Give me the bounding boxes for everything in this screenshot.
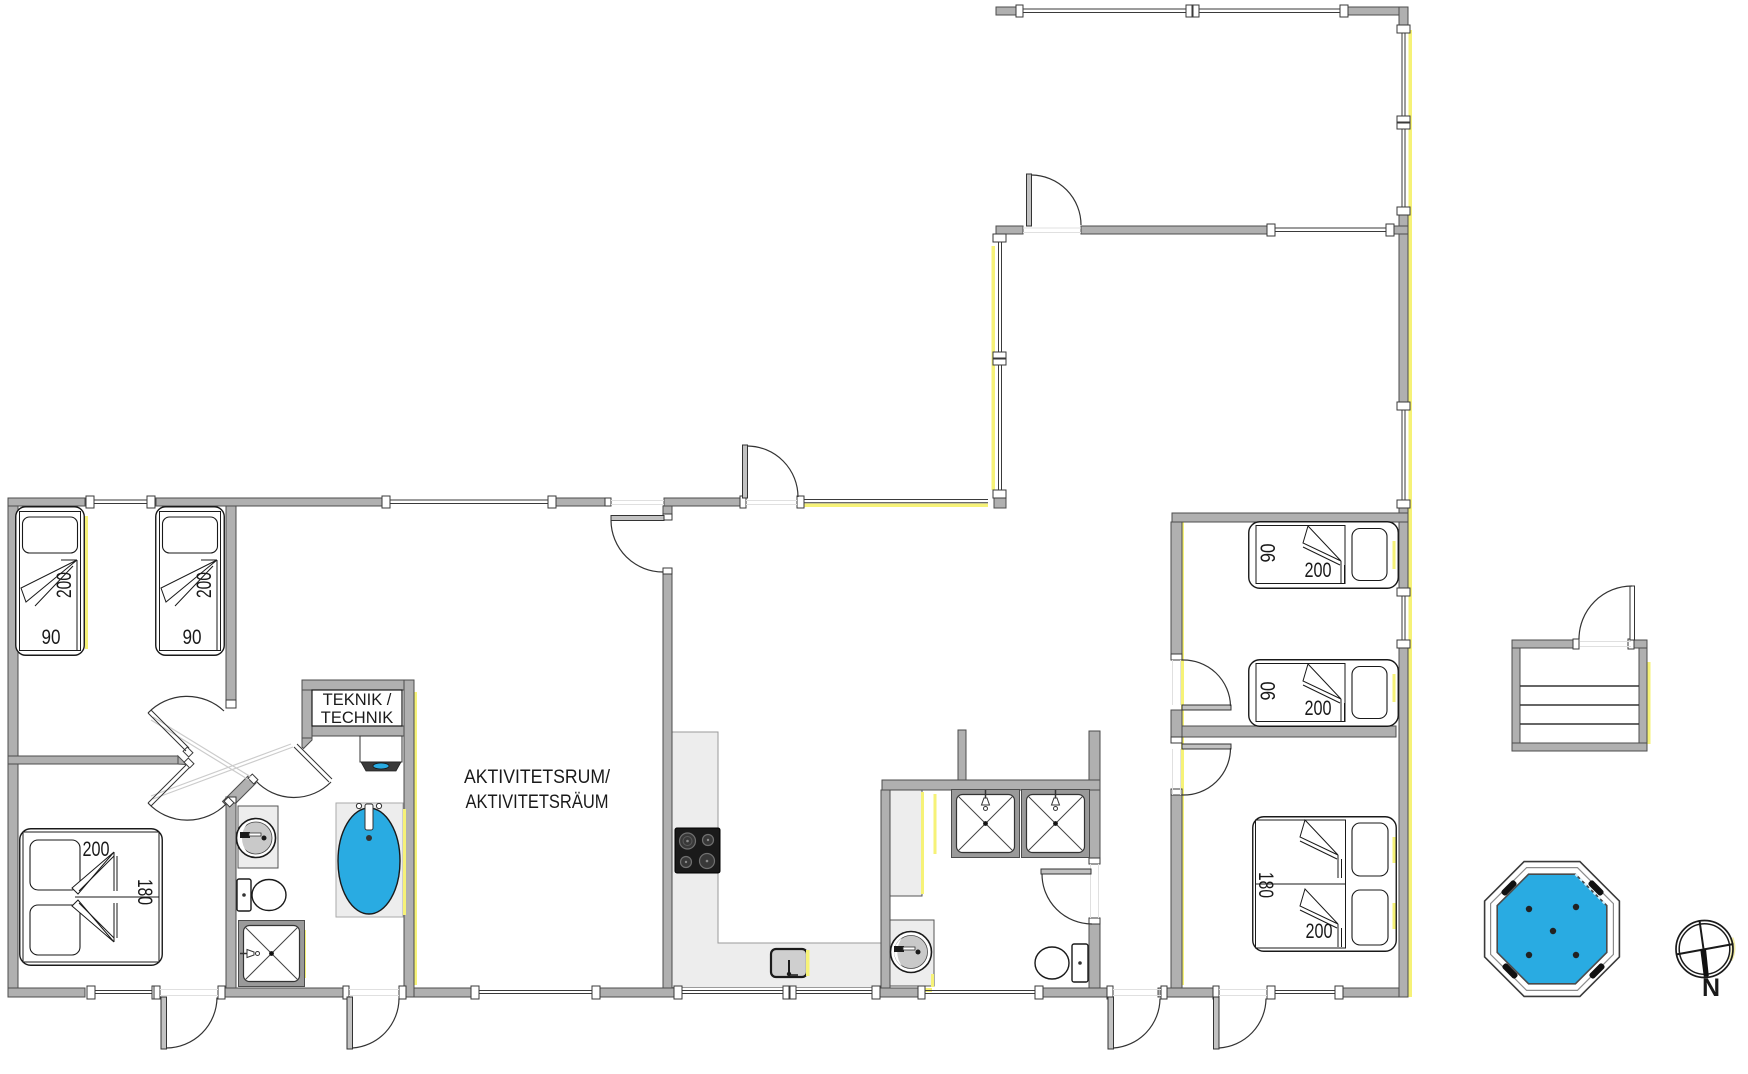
- svg-text:TEKNIK /: TEKNIK /: [323, 691, 392, 709]
- svg-text:90: 90: [1257, 544, 1280, 563]
- svg-text:200: 200: [193, 572, 216, 598]
- svg-text:90: 90: [1257, 682, 1280, 701]
- svg-text:N: N: [1702, 974, 1720, 1002]
- svg-text:90: 90: [42, 626, 61, 649]
- svg-text:AKTIVITETSRUM/: AKTIVITETSRUM/: [464, 767, 611, 788]
- svg-text:180: 180: [133, 879, 156, 905]
- svg-text:200: 200: [1305, 559, 1332, 582]
- svg-text:AKTIVITETSRÄUM: AKTIVITETSRÄUM: [466, 792, 609, 813]
- svg-text:200: 200: [53, 572, 76, 598]
- svg-text:TECHNIK: TECHNIK: [321, 709, 393, 727]
- svg-text:200: 200: [1305, 697, 1332, 720]
- svg-text:90: 90: [183, 626, 202, 649]
- svg-text:180: 180: [1254, 872, 1277, 898]
- svg-text:200: 200: [1306, 920, 1333, 943]
- svg-text:200: 200: [83, 838, 110, 861]
